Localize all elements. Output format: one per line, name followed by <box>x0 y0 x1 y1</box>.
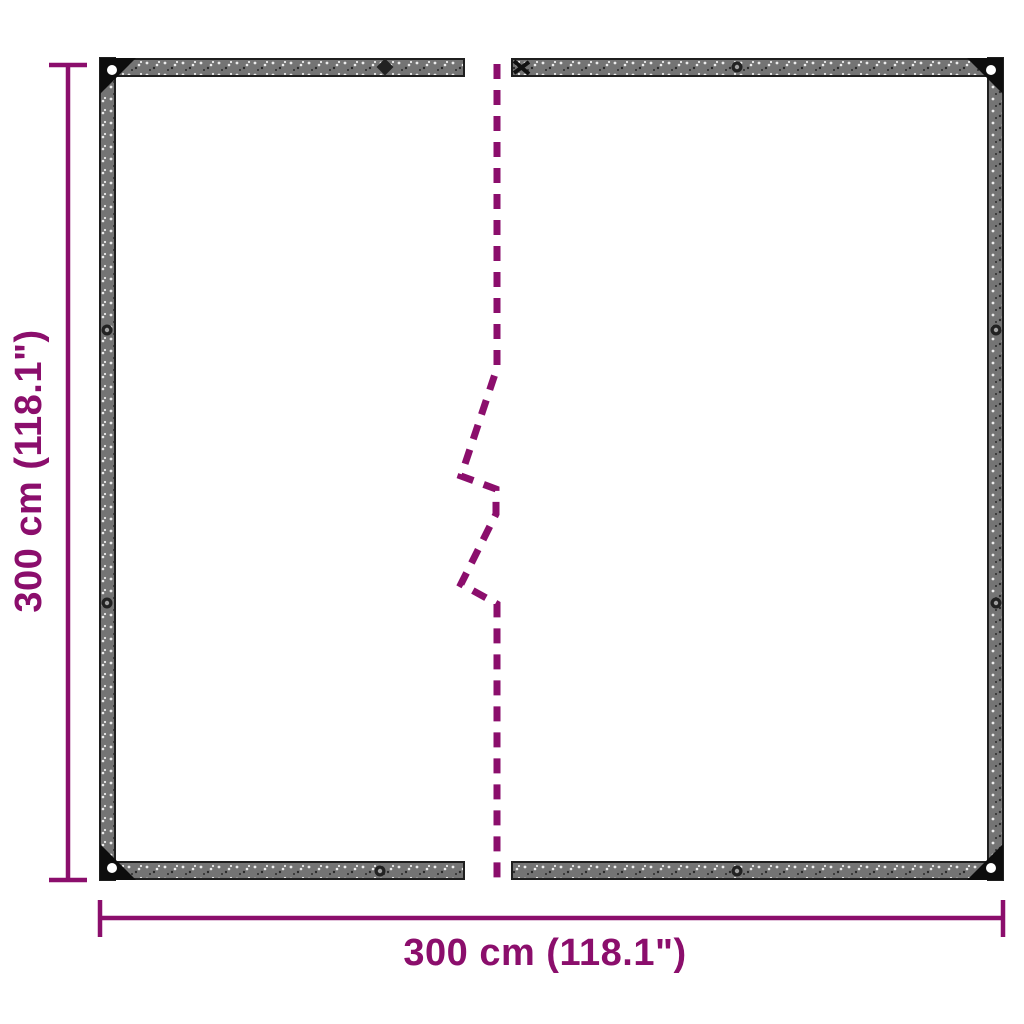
tarp-top-edge-band-right <box>512 59 1003 76</box>
tarp-bottom-edge-band-right <box>512 862 1003 879</box>
corner-eyelet-bottom-right <box>986 863 996 873</box>
diagram-canvas: 300 cm (118.1") 300 cm (118.1") <box>0 0 1024 1024</box>
tarp <box>100 58 1003 880</box>
product-dimension-diagram: 300 cm (118.1") 300 cm (118.1") <box>0 0 1024 1024</box>
tarp-top-edge-band-left <box>100 59 464 76</box>
tarp-eyelets <box>102 59 1002 877</box>
tarp-right-edge-band <box>988 58 1003 880</box>
center-break-dashed-line <box>461 64 497 880</box>
height-dimension <box>49 65 87 880</box>
width-dimension-label: 300 cm (118.1") <box>403 932 686 974</box>
corner-eyelet-top-right <box>986 65 996 75</box>
height-dimension-label: 300 cm (118.1") <box>8 329 50 612</box>
tarp-left-edge-band <box>100 58 115 880</box>
corner-eyelet-bottom-left <box>107 863 117 873</box>
tarp-bottom-edge-band-left <box>100 862 464 879</box>
corner-eyelet-top-left <box>107 65 117 75</box>
tarp-corner-patches <box>100 58 1003 880</box>
